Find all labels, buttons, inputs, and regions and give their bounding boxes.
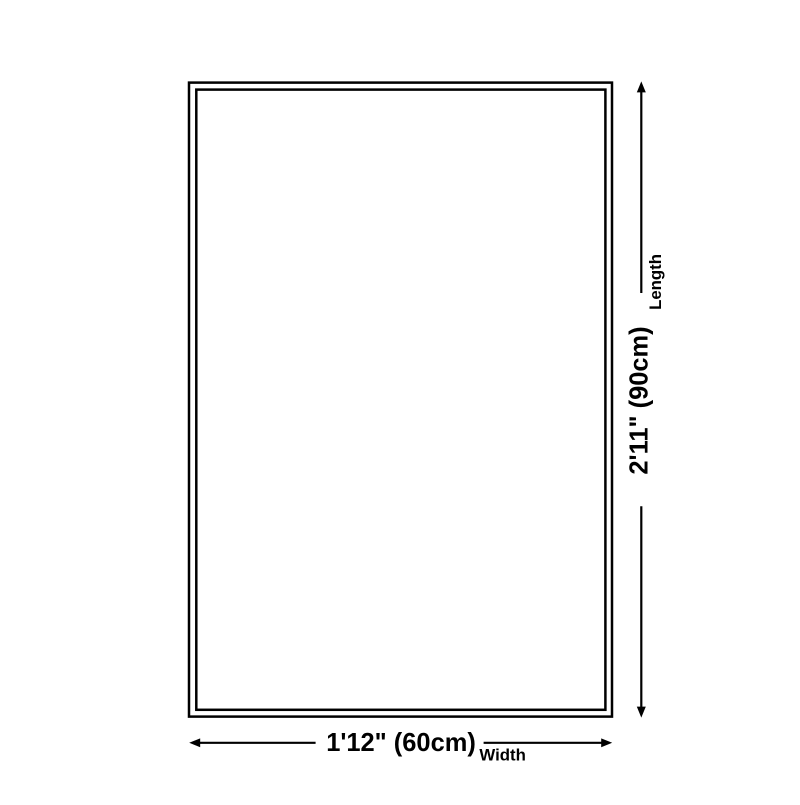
svg-text:Length: Length xyxy=(646,254,665,310)
svg-text:Width: Width xyxy=(479,746,525,765)
svg-text:2'11" (90cm): 2'11" (90cm) xyxy=(626,326,654,474)
svg-text:1'12" (60cm): 1'12" (60cm) xyxy=(326,729,476,757)
